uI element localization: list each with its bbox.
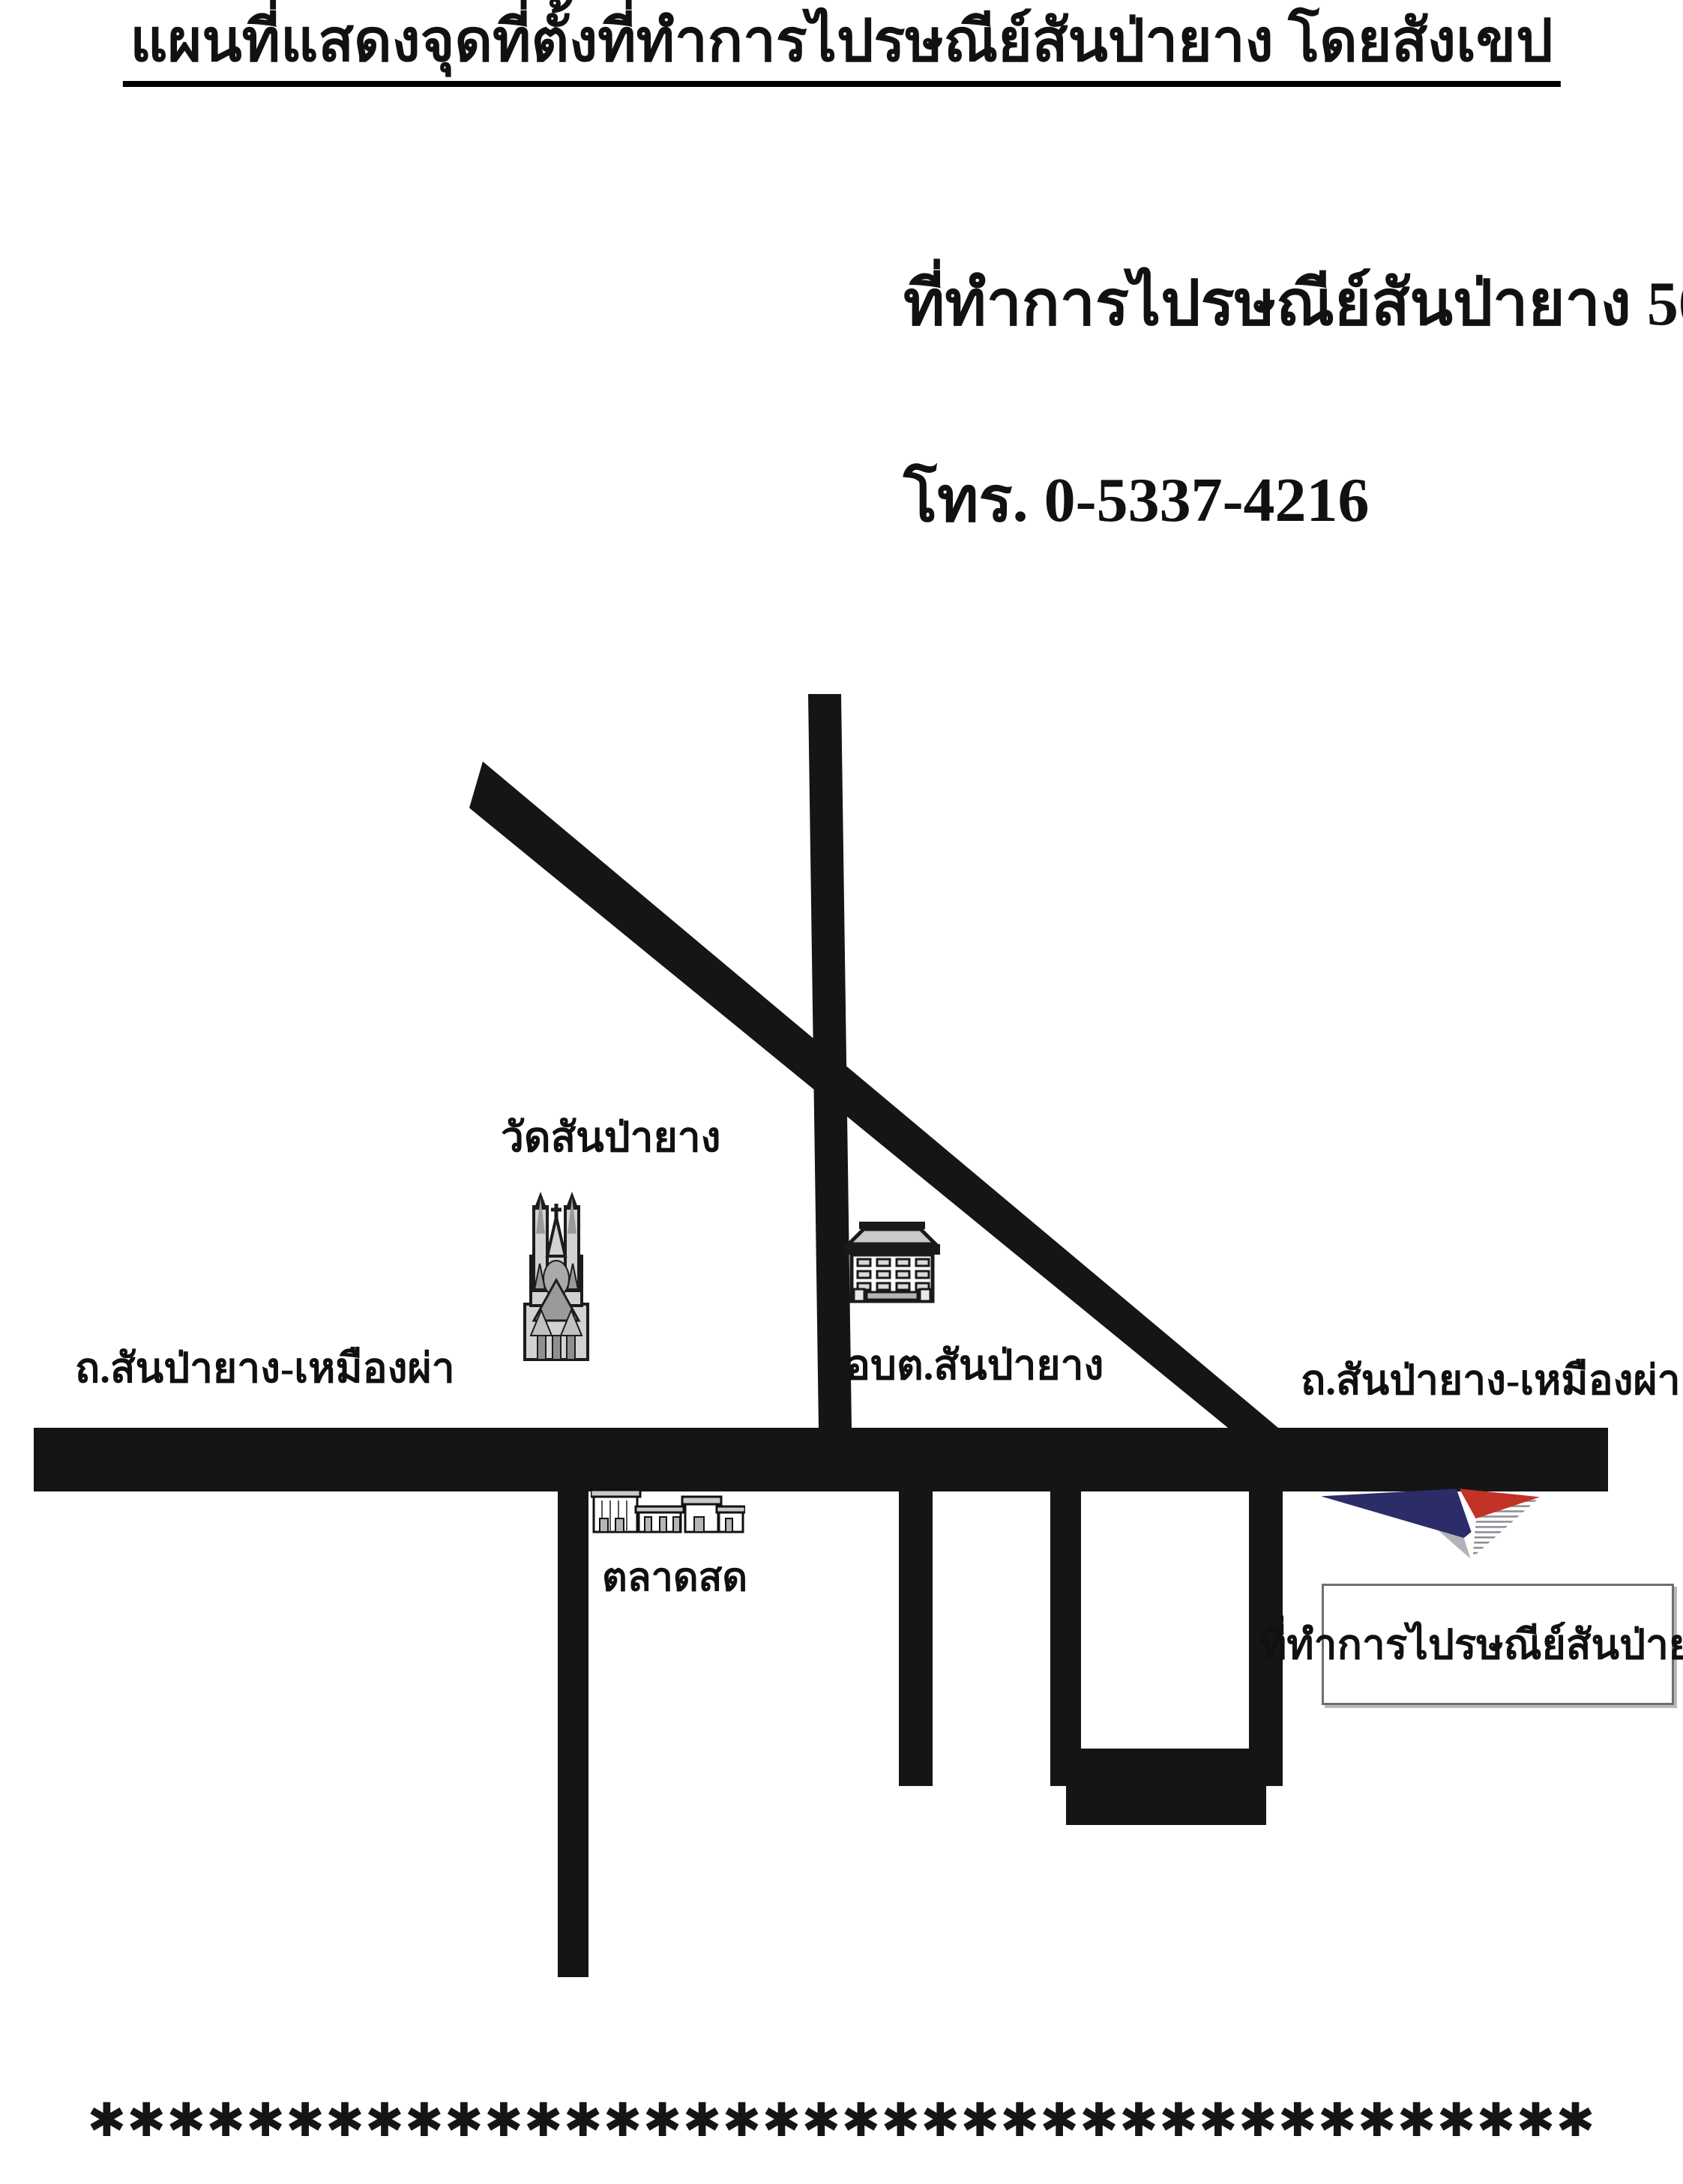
post-office-label-box: ที่ทำการไปรษณีย์สันป่ายาง bbox=[1322, 1584, 1674, 1705]
post-office-label: ที่ทำการไปรษณีย์สันป่ายาง bbox=[1259, 1612, 1683, 1677]
footer-asterisks: ✱✱✱✱✱✱✱✱✱✱✱✱✱✱✱✱✱✱✱✱✱✱✱✱✱✱✱✱✱✱✱✱✱✱✱✱✱✱ bbox=[0, 2093, 1683, 2147]
temple-label: วัดสันป่ายาง bbox=[501, 1105, 721, 1170]
market-label: ตลาดสด bbox=[602, 1545, 747, 1608]
road-label-left: ถ.สันป่ายาง-เหมืองผ่า bbox=[75, 1336, 455, 1401]
logo-navy-wing bbox=[1321, 1488, 1472, 1538]
sao-label: อบต.สันป่ายาง bbox=[846, 1333, 1104, 1398]
road-label-right: ถ.สันป่ายาง-เหมืองผ่า bbox=[1301, 1348, 1681, 1413]
market-road bbox=[558, 1491, 588, 1977]
north-road bbox=[808, 694, 852, 1428]
market-icon bbox=[591, 1487, 745, 1533]
loop-road-bottom bbox=[1050, 1749, 1283, 1786]
map-page: { "title": { "text": "แผนที่แสดงจุดที่ตั… bbox=[0, 0, 1683, 2184]
temple-icon bbox=[519, 1192, 594, 1363]
main-road bbox=[34, 1428, 1608, 1491]
thailand-post-logo-icon bbox=[1318, 1484, 1541, 1583]
sao-building-icon bbox=[843, 1222, 942, 1304]
loop-road-left bbox=[1050, 1491, 1081, 1786]
road-map-canvas bbox=[0, 0, 1683, 2184]
loop-road-stub bbox=[1066, 1786, 1266, 1825]
middle-road bbox=[899, 1491, 933, 1786]
